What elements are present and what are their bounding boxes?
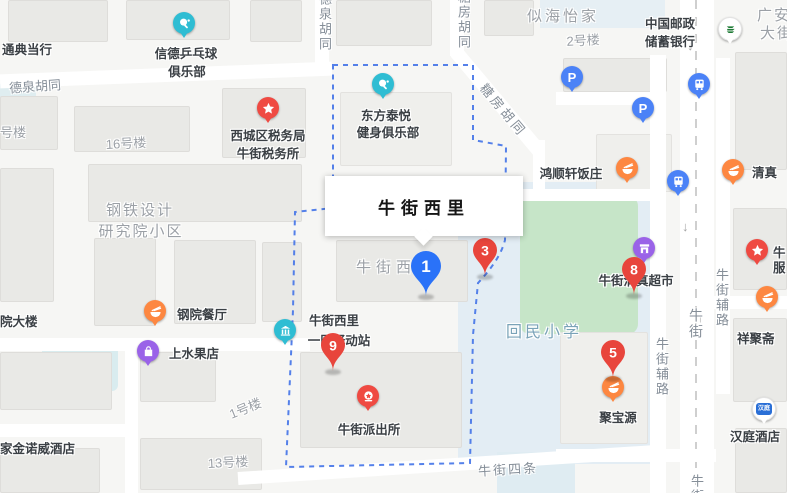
poi-label-hanting[interactable]: 汉庭酒店 xyxy=(730,426,780,445)
road xyxy=(0,424,126,437)
poi-label-qingzhen[interactable]: 清真 xyxy=(752,162,777,181)
street-label-dequan-h: 德泉胡同 xyxy=(8,74,61,97)
street-label-fulu-east: 牛街辅路 xyxy=(712,268,731,328)
poi-label-pingpong-1[interactable]: 信德乒乓球 xyxy=(155,43,218,62)
map-canvas[interactable]: ↓ ↑ ↓ 似海怡家 2号楼 16号楼 号楼 钢铁设计 研究院小区 牛街西里 1… xyxy=(0,0,787,493)
poi-label-pawnshop[interactable]: 通典当行 xyxy=(2,39,52,58)
bus-stop-icon[interactable] xyxy=(688,73,710,95)
building xyxy=(735,52,787,170)
building xyxy=(336,0,432,46)
poi-label-gangyuan[interactable]: 钢院餐厅 xyxy=(177,304,227,323)
postal-bank-icon[interactable] xyxy=(718,17,742,41)
info-window[interactable]: 牛街西里 xyxy=(325,176,523,236)
police-badge-icon[interactable] xyxy=(357,385,379,407)
area-label-building1: 1号楼 xyxy=(226,392,264,422)
svg-text:3: 3 xyxy=(481,243,489,259)
fitness-sports-icon[interactable] xyxy=(372,73,394,95)
poi-label-postal-1[interactable]: 中国邮政 xyxy=(645,13,695,32)
poi-label-yidong-1[interactable]: 牛街西里 xyxy=(309,310,359,329)
area-label-building16: 16号楼 xyxy=(105,132,146,153)
poi-label-jinnuowei[interactable]: 家金诺威酒店 xyxy=(0,438,75,457)
building xyxy=(0,352,112,410)
building xyxy=(250,0,302,42)
street-label-niujie: 牛街 xyxy=(686,308,706,340)
svg-text:9: 9 xyxy=(329,338,337,354)
food-icon[interactable] xyxy=(616,157,638,179)
marker-pin-3[interactable]: 3 xyxy=(471,237,499,277)
hanting-hotel-icon[interactable]: 汉庭 xyxy=(752,397,776,421)
area-label-steel-institute-1: 钢铁设计 xyxy=(106,199,174,220)
street-label-tangfang-diag: 糖房胡同 xyxy=(476,79,532,140)
road xyxy=(556,449,716,462)
poi-label-postal-2[interactable]: 储蓄银行 xyxy=(645,31,695,50)
tax-star-icon[interactable] xyxy=(257,97,279,119)
star-icon[interactable] xyxy=(746,239,768,261)
poi-label-clipped-2[interactable]: 服 xyxy=(773,257,786,276)
marker-pin-9[interactable]: 9 xyxy=(319,332,347,372)
bus-stop-icon[interactable] xyxy=(667,170,689,192)
poi-label-jubaoyuan[interactable]: 聚宝源 xyxy=(599,407,637,426)
shopping-bag-icon[interactable] xyxy=(137,340,159,362)
area-label-building-clipped: 号楼 xyxy=(0,122,26,141)
poi-label-police[interactable]: 牛街派出所 xyxy=(338,419,401,438)
road xyxy=(125,345,138,493)
svg-text:5: 5 xyxy=(609,345,617,361)
svg-text:8: 8 xyxy=(630,262,638,278)
street-label-niujie-bottom: 牛街 xyxy=(687,474,706,493)
street-label-sitiao: 牛街四条 xyxy=(477,457,538,480)
food-icon[interactable] xyxy=(722,159,744,181)
marker-pin-8[interactable]: 8 xyxy=(620,256,648,296)
poi-label-tax-2[interactable]: 牛街税务所 xyxy=(237,143,300,162)
pingpong-sports-icon[interactable] xyxy=(173,12,195,34)
area-label-huimin-school: 回民小学 xyxy=(506,318,582,342)
building xyxy=(0,168,54,302)
parking-icon[interactable]: P xyxy=(632,97,654,119)
poi-label-hongshunxuan[interactable]: 鸿顺轩饭庄 xyxy=(540,163,603,182)
poi-label-fruitshop[interactable]: 上水果店 xyxy=(169,343,219,362)
area-label-building2: 2号楼 xyxy=(566,29,600,50)
area-label-sihaiyijia: 似海怡家 xyxy=(527,5,599,26)
poi-label-tax-1[interactable]: 西城区税务局 xyxy=(230,125,305,144)
area-label-yuan-dalou: 院大楼 xyxy=(0,311,38,330)
street-label-guangan-2: 大街 xyxy=(760,22,787,43)
road-fulu-east xyxy=(716,58,730,394)
poi-label-xiangjuzhai[interactable]: 祥聚斋 xyxy=(737,328,775,347)
road-arrow-down-icon: ↓ xyxy=(682,219,689,234)
area-label-steel-institute-2: 研究院小区 xyxy=(98,220,183,241)
food-icon[interactable] xyxy=(144,300,166,322)
marker-pin-5[interactable]: 5 xyxy=(599,339,627,379)
food-icon[interactable] xyxy=(756,286,778,308)
poi-label-pingpong-2[interactable]: 俱乐部 xyxy=(168,61,206,80)
street-label-dequan-v: 德泉胡同 xyxy=(315,0,334,52)
street-label-fulu-west: 牛街辅路 xyxy=(652,337,671,397)
marker-pin-1[interactable]: 1 xyxy=(409,250,443,297)
building xyxy=(8,0,108,42)
building xyxy=(262,242,302,322)
info-window-title: 牛街西里 xyxy=(378,194,470,219)
parking-icon[interactable]: P xyxy=(561,66,583,88)
area-label-building13: 13号楼 xyxy=(207,451,248,472)
road xyxy=(520,189,656,201)
station-icon[interactable] xyxy=(274,319,296,341)
street-label-tangfang-v: 糖房胡同 xyxy=(454,0,473,50)
svg-text:1: 1 xyxy=(421,257,430,276)
poi-label-fitness-2[interactable]: 健身俱乐部 xyxy=(357,122,420,141)
